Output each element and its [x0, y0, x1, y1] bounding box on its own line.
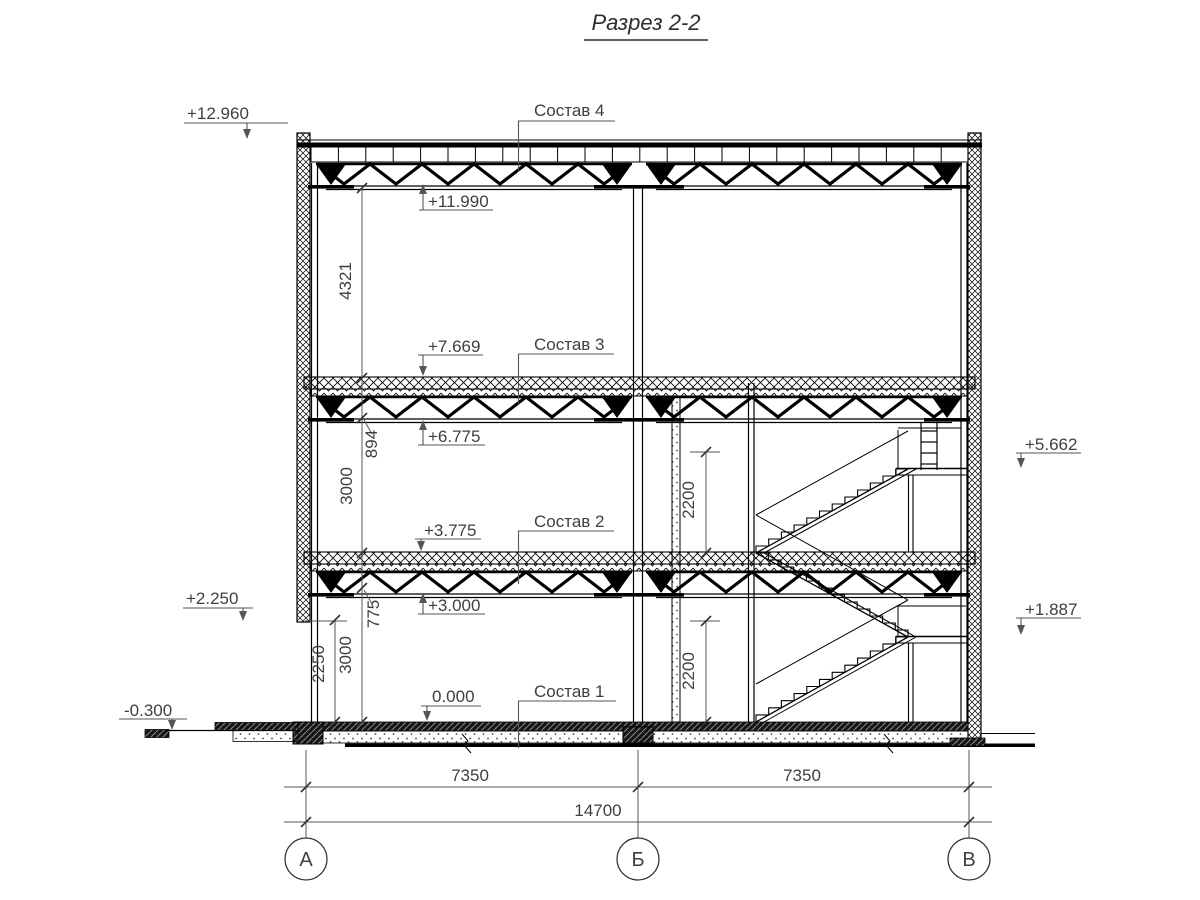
elevation-label: -0.300	[124, 701, 172, 720]
wall-right	[968, 133, 981, 745]
foundation-b	[623, 727, 653, 743]
dim-775: 775	[364, 600, 383, 628]
foundation-v	[950, 738, 985, 746]
roof-assembly	[297, 140, 982, 190]
dim-span-ab: 7350	[451, 766, 489, 785]
elevation-label: +2.250	[186, 589, 238, 608]
elevation-roof-truss-bottom: +11.990	[419, 184, 493, 211]
ladder	[921, 423, 937, 470]
elevation-label: +12.960	[187, 104, 249, 123]
dim-3000-lower: 3000	[336, 636, 355, 674]
columns	[312, 163, 968, 727]
elevation-wall-panel-bottom: +2.250	[183, 589, 253, 621]
dim-2250: 2250	[309, 645, 328, 683]
composition-label: Состав 1	[534, 682, 605, 701]
dim-894: 894	[362, 430, 381, 458]
dim-3000-upper: 3000	[337, 467, 356, 505]
elevation-floor3-truss-bottom: +6.775	[418, 420, 485, 446]
elevation-label: +3.775	[424, 521, 476, 540]
dim-2200-upper: 2200	[679, 481, 698, 519]
floor2-assembly	[304, 552, 975, 598]
elevation-parapet: +12.960	[184, 104, 288, 139]
composition-label: Состав 4	[534, 101, 605, 120]
elevation-label: +6.775	[428, 427, 480, 446]
page-title: Разрез 2-2	[591, 10, 700, 35]
horizontal-dimensions: 7350 7350 14700	[284, 750, 992, 838]
dim-2200-lower: 2200	[679, 652, 698, 690]
composition-callouts: Состав 4 Состав 3 Состав 2 Состав 1	[518, 101, 616, 748]
axis-label-v: В	[962, 849, 975, 871]
elevation-label: +3.000	[428, 596, 480, 615]
grid-axes: А Б В	[285, 838, 990, 880]
section-drawing: Разрез 2-2 +12.960 +11.990 +7.669 +6.775…	[0, 0, 1200, 900]
elevation-floor2-truss-bottom: +3.000	[418, 593, 485, 615]
dim-total: 14700	[574, 801, 621, 820]
elevation-label: +7.669	[428, 337, 480, 356]
elevation-floor3-top: +7.669	[418, 337, 483, 376]
callout-sostav4: Состав 4	[518, 101, 615, 172]
composition-label: Состав 3	[534, 335, 605, 354]
drawing-sheet: Разрез 2-2 +12.960 +11.990 +7.669 +6.775…	[0, 0, 1200, 900]
elevation-ground-floor: 0.000	[421, 687, 481, 721]
elevation-label: 0.000	[432, 687, 475, 706]
drawing-title-block: Разрез 2-2	[584, 10, 708, 40]
floor3-assembly	[304, 377, 975, 423]
vertical-dimensions: 4321 894 3000 775 3000 2250 2200 2200	[305, 183, 720, 727]
elevation-floor2-top: +3.775	[415, 521, 481, 551]
elevation-outside-ground: -0.300	[119, 701, 187, 730]
wall-left	[297, 133, 310, 622]
composition-label: Состав 2	[534, 512, 605, 531]
dim-span-bv: 7350	[783, 766, 821, 785]
elevation-landing-upper: +5.662	[1016, 435, 1081, 468]
ground-floor	[145, 722, 1035, 753]
elevation-landing-lower: +1.887	[1016, 600, 1081, 635]
axis-label-b: Б	[631, 849, 644, 871]
dim-4321: 4321	[336, 262, 355, 300]
elevation-label: +5.662	[1025, 435, 1077, 454]
axis-label-a: А	[299, 849, 313, 871]
elevation-label: +1.887	[1025, 600, 1077, 619]
elevation-label: +11.990	[428, 192, 489, 211]
